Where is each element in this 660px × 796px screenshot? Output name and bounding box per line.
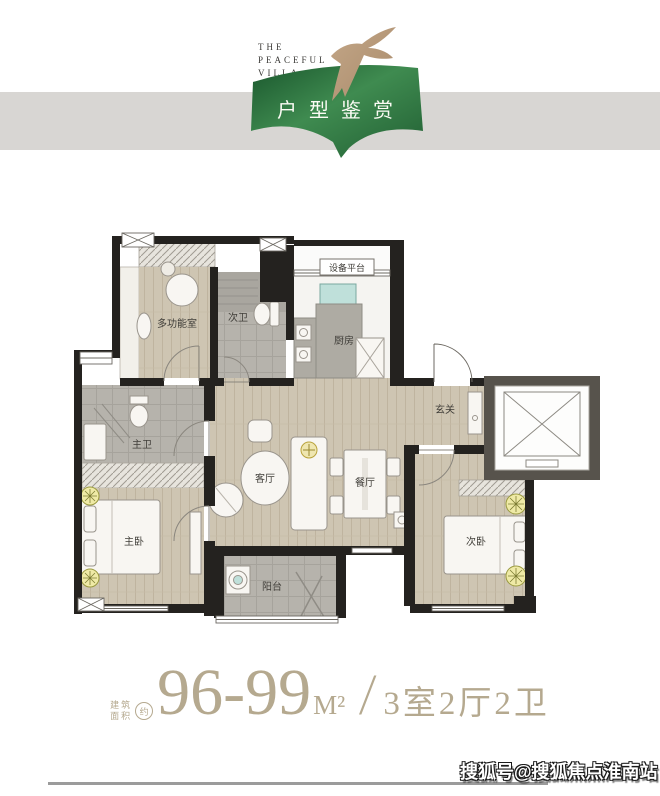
area-label-top: 建筑: [110, 700, 132, 711]
elevator-shaft: [484, 376, 600, 480]
area-summary: 建筑 面积 约 96-99 M² / 3室2厅2卫: [0, 660, 660, 746]
room-label-kitchen: 厨房: [334, 334, 354, 347]
room-label-dining: 餐厅: [355, 476, 375, 489]
watermark-text: 搜狐号@搜狐焦点淮南站: [460, 758, 660, 784]
room-label-living: 客厅: [255, 472, 275, 485]
room-label-bed2: 次卧: [466, 535, 486, 548]
banner-title: 户型鉴赏: [246, 94, 424, 123]
room-label-bath2: 次卫: [228, 311, 248, 324]
room-label-multi: 多功能室: [157, 317, 197, 330]
room-label-balcony: 阳台: [262, 580, 282, 593]
room-label-platform: 设备平台: [329, 262, 365, 273]
approx-badge: 约: [135, 702, 153, 720]
area-label: 建筑 面积: [110, 700, 132, 722]
room-label-master: 主卧: [124, 535, 144, 548]
area-meta: 建筑 面积 约: [110, 700, 153, 722]
area-label-bottom: 面积: [110, 711, 132, 722]
area-unit: M²: [313, 690, 345, 721]
floorplan-drawing: 多功能室 次卫 设备平台 厨房 玄关 主卫 客厅 餐厅 主卧 阳台 次卧: [64, 228, 600, 630]
layout-text: 3室2厅2卫: [383, 676, 550, 724]
area-value: 96-99: [157, 660, 311, 726]
floorplan-page: THE PEACEFUL VILLA 户型鉴赏: [0, 0, 660, 796]
divider-slash: /: [361, 661, 373, 728]
room-label-bath1: 主卫: [132, 439, 152, 451]
room-label-foyer: 玄关: [435, 403, 455, 416]
